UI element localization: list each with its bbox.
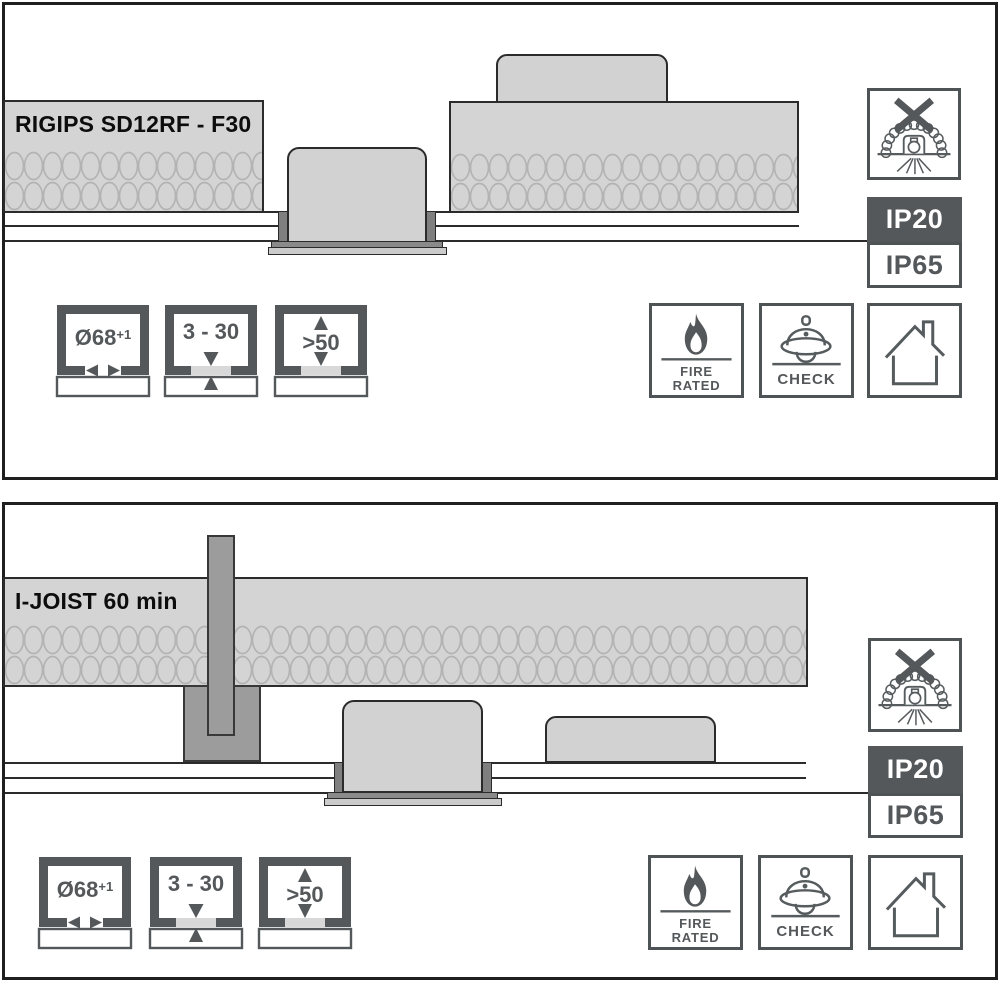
fire-rated-icon [652, 306, 741, 364]
fire-rated-icon [651, 858, 740, 916]
check-label: CHECK [761, 923, 850, 940]
cutout-dimension: Ø68+1 [37, 877, 133, 903]
driver-box [545, 716, 716, 763]
fixing-clamp-right [482, 762, 492, 793]
ceiling-thickness-box: 3 - 30 [148, 855, 244, 950]
ceiling-block-right [449, 101, 799, 213]
panel-rigips-f30: RIGIPS SD12RF - F30 [2, 2, 998, 480]
insulation-loops [5, 625, 806, 685]
thickness-dimension: 3 - 30 [163, 319, 259, 345]
no-insulation-cover-icon [871, 641, 959, 729]
luminaire-housing [342, 700, 483, 793]
clearance-dimension: >50 [273, 330, 369, 356]
check-box: CHECK [758, 855, 853, 950]
fire-rated-label-2: RATED [652, 378, 741, 393]
fire-rated-label-1: FIRE [651, 916, 740, 931]
luminaire-trim-bezel [324, 798, 502, 806]
ceiling-thickness-box: 3 - 30 [163, 303, 259, 398]
cutout-diameter-box: Ø68+1 [37, 855, 133, 950]
no-insulation-cover-box [867, 88, 961, 180]
fire-rated-label-2: RATED [651, 930, 740, 945]
ceiling-thickness-icon [148, 855, 244, 950]
clearance-box: >50 [273, 303, 369, 398]
driver-box [496, 54, 668, 104]
house-box [868, 855, 963, 950]
floor-block: I-JOIST 60 min [3, 577, 808, 687]
fire-rated-label-1: FIRE [652, 364, 741, 379]
check-label: CHECK [762, 371, 851, 388]
clearance-box: >50 [257, 855, 353, 950]
cutout-dimension: Ø68+1 [55, 325, 151, 351]
ceiling-block-left: RIGIPS SD12RF - F30 [3, 100, 264, 213]
fixing-clamp-right [426, 211, 436, 243]
no-insulation-cover-icon [870, 91, 958, 177]
house-icon [870, 306, 959, 395]
ip-rating-above: IP20 [868, 746, 963, 793]
house-icon [871, 858, 960, 947]
ip-rating-below: IP65 [867, 242, 962, 288]
ijoist-web [207, 535, 235, 736]
house-box [867, 303, 962, 398]
thickness-dimension: 3 - 30 [148, 871, 244, 897]
fire-helmet-check-icon [761, 858, 850, 918]
no-insulation-cover-box [868, 638, 962, 732]
insulation-loops [5, 151, 262, 211]
panel-title: RIGIPS SD12RF - F30 [15, 111, 251, 138]
ip-rating-below: IP65 [868, 793, 963, 838]
fire-rated-box: FIRE RATED [649, 303, 744, 398]
cutout-diameter-box: Ø68+1 [55, 303, 151, 398]
ceiling-thickness-icon [163, 303, 259, 398]
luminaire-housing [287, 147, 427, 243]
check-box: CHECK [759, 303, 854, 398]
fire-helmet-check-icon [762, 306, 851, 366]
clearance-dimension: >50 [257, 882, 353, 908]
insulation-loops [451, 153, 797, 211]
fire-rated-box: FIRE RATED [648, 855, 743, 950]
ip-rating-above: IP20 [867, 197, 962, 242]
panel-title: I-JOIST 60 min [15, 588, 178, 615]
luminaire-trim-bezel [268, 247, 447, 255]
panel-ijoist-60min: I-JOIST 60 min [2, 502, 998, 980]
